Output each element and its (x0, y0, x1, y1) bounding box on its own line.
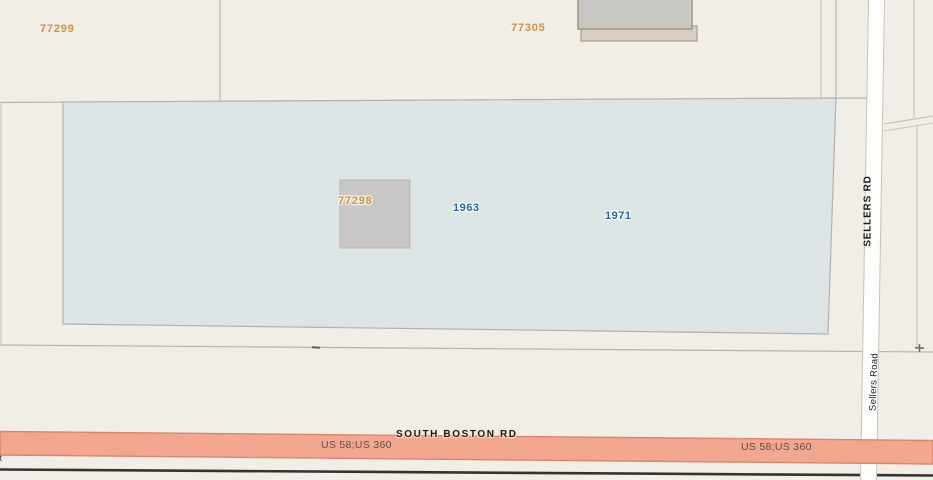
parcel-label-77299: 77299 (40, 23, 75, 35)
address-label-1963: 1963 (453, 202, 479, 214)
building-footprint-center (340, 180, 410, 248)
scale-unit-label: ft (0, 453, 2, 463)
parcel-boundary-line (0, 345, 933, 352)
map-canvas[interactable]: 77299 77305 77298 1963 1971 SELLERS RD S… (0, 0, 933, 480)
parcel-label-77298: 77298 (338, 195, 373, 207)
parcel-label-77305: 77305 (511, 22, 546, 34)
sellers-road-label: Sellers Road (867, 353, 880, 411)
building-footprint-top (578, 0, 692, 29)
us58-us360-label-left: US 58;US 360 (321, 439, 392, 451)
us58-us360-label-right: US 58;US 360 (741, 441, 812, 453)
map-graphics-layer (0, 0, 933, 480)
sellers-rd-label: SELLERS RD (863, 175, 874, 246)
address-label-1971: 1971 (605, 210, 631, 222)
parcel-boundary-line (884, 116, 933, 124)
south-boston-rd-label: SOUTH BOSTON RD (396, 429, 518, 440)
survey-tick (312, 347, 320, 348)
map-frame-line (0, 470, 933, 476)
highlighted-parcel[interactable] (63, 98, 836, 334)
parcel-boundary-line (884, 123, 933, 131)
